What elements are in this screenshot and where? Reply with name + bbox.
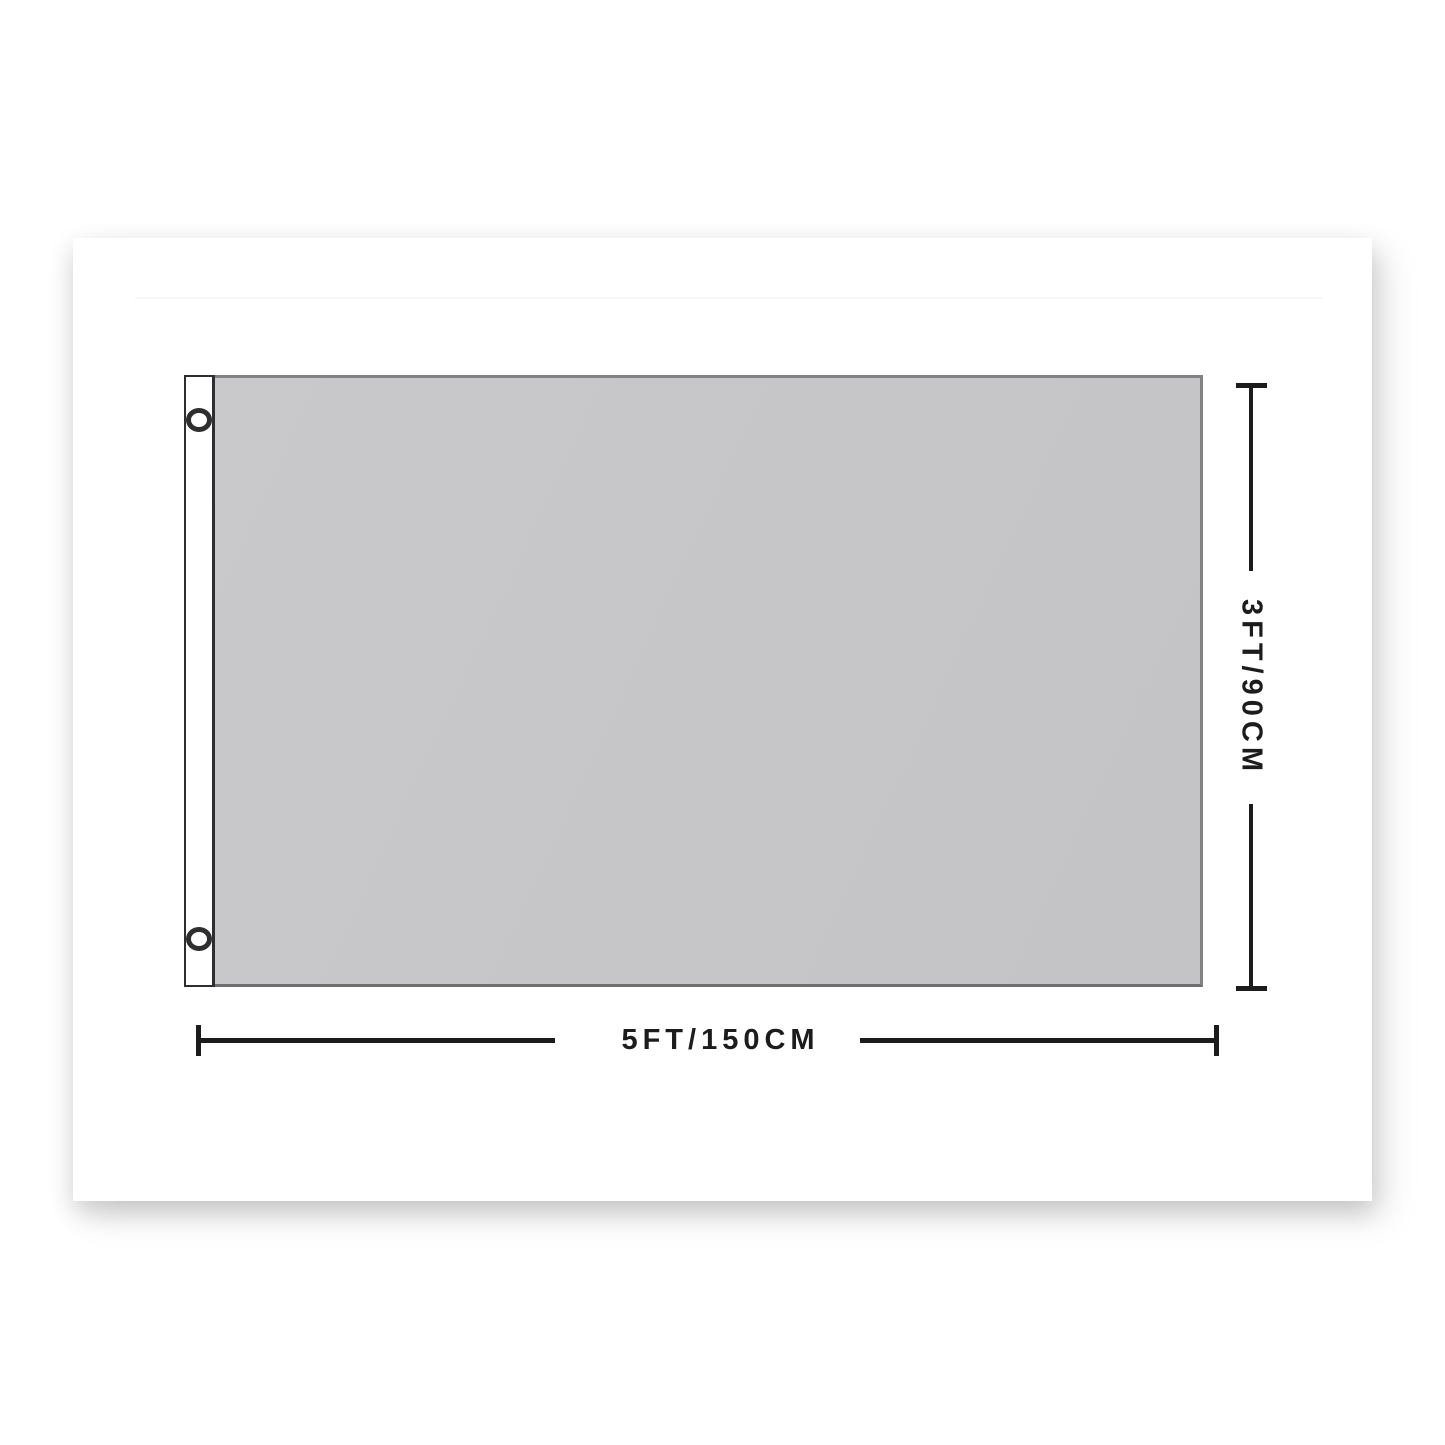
dimension-tick-right — [1214, 1025, 1219, 1056]
dimension-line-left — [201, 1038, 555, 1043]
height-dimension-annotation: 3FT/90CM — [1235, 383, 1267, 991]
dimension-tick-bottom — [1236, 986, 1267, 991]
product-image-card: 5FT/150CM 3FT/90CM — [73, 238, 1372, 1201]
grommet-bottom-icon — [186, 927, 212, 951]
dimension-line-top — [1249, 388, 1253, 571]
width-dimension-annotation: 5FT/150CM — [196, 1024, 1219, 1056]
dimension-line-bottom — [1249, 804, 1253, 987]
grommet-top-icon — [186, 408, 212, 432]
flag-body — [215, 375, 1203, 987]
width-dimension-label: 5FT/150CM — [581, 1024, 859, 1057]
flag-pole-sleeve — [184, 375, 215, 987]
page-background: { "image": { "type": "flag-size-dimensio… — [0, 0, 1445, 1445]
height-dimension-label: 3FT/90CM — [1235, 571, 1268, 804]
card-faint-divider — [135, 297, 1322, 299]
dimension-line-right — [860, 1038, 1214, 1043]
